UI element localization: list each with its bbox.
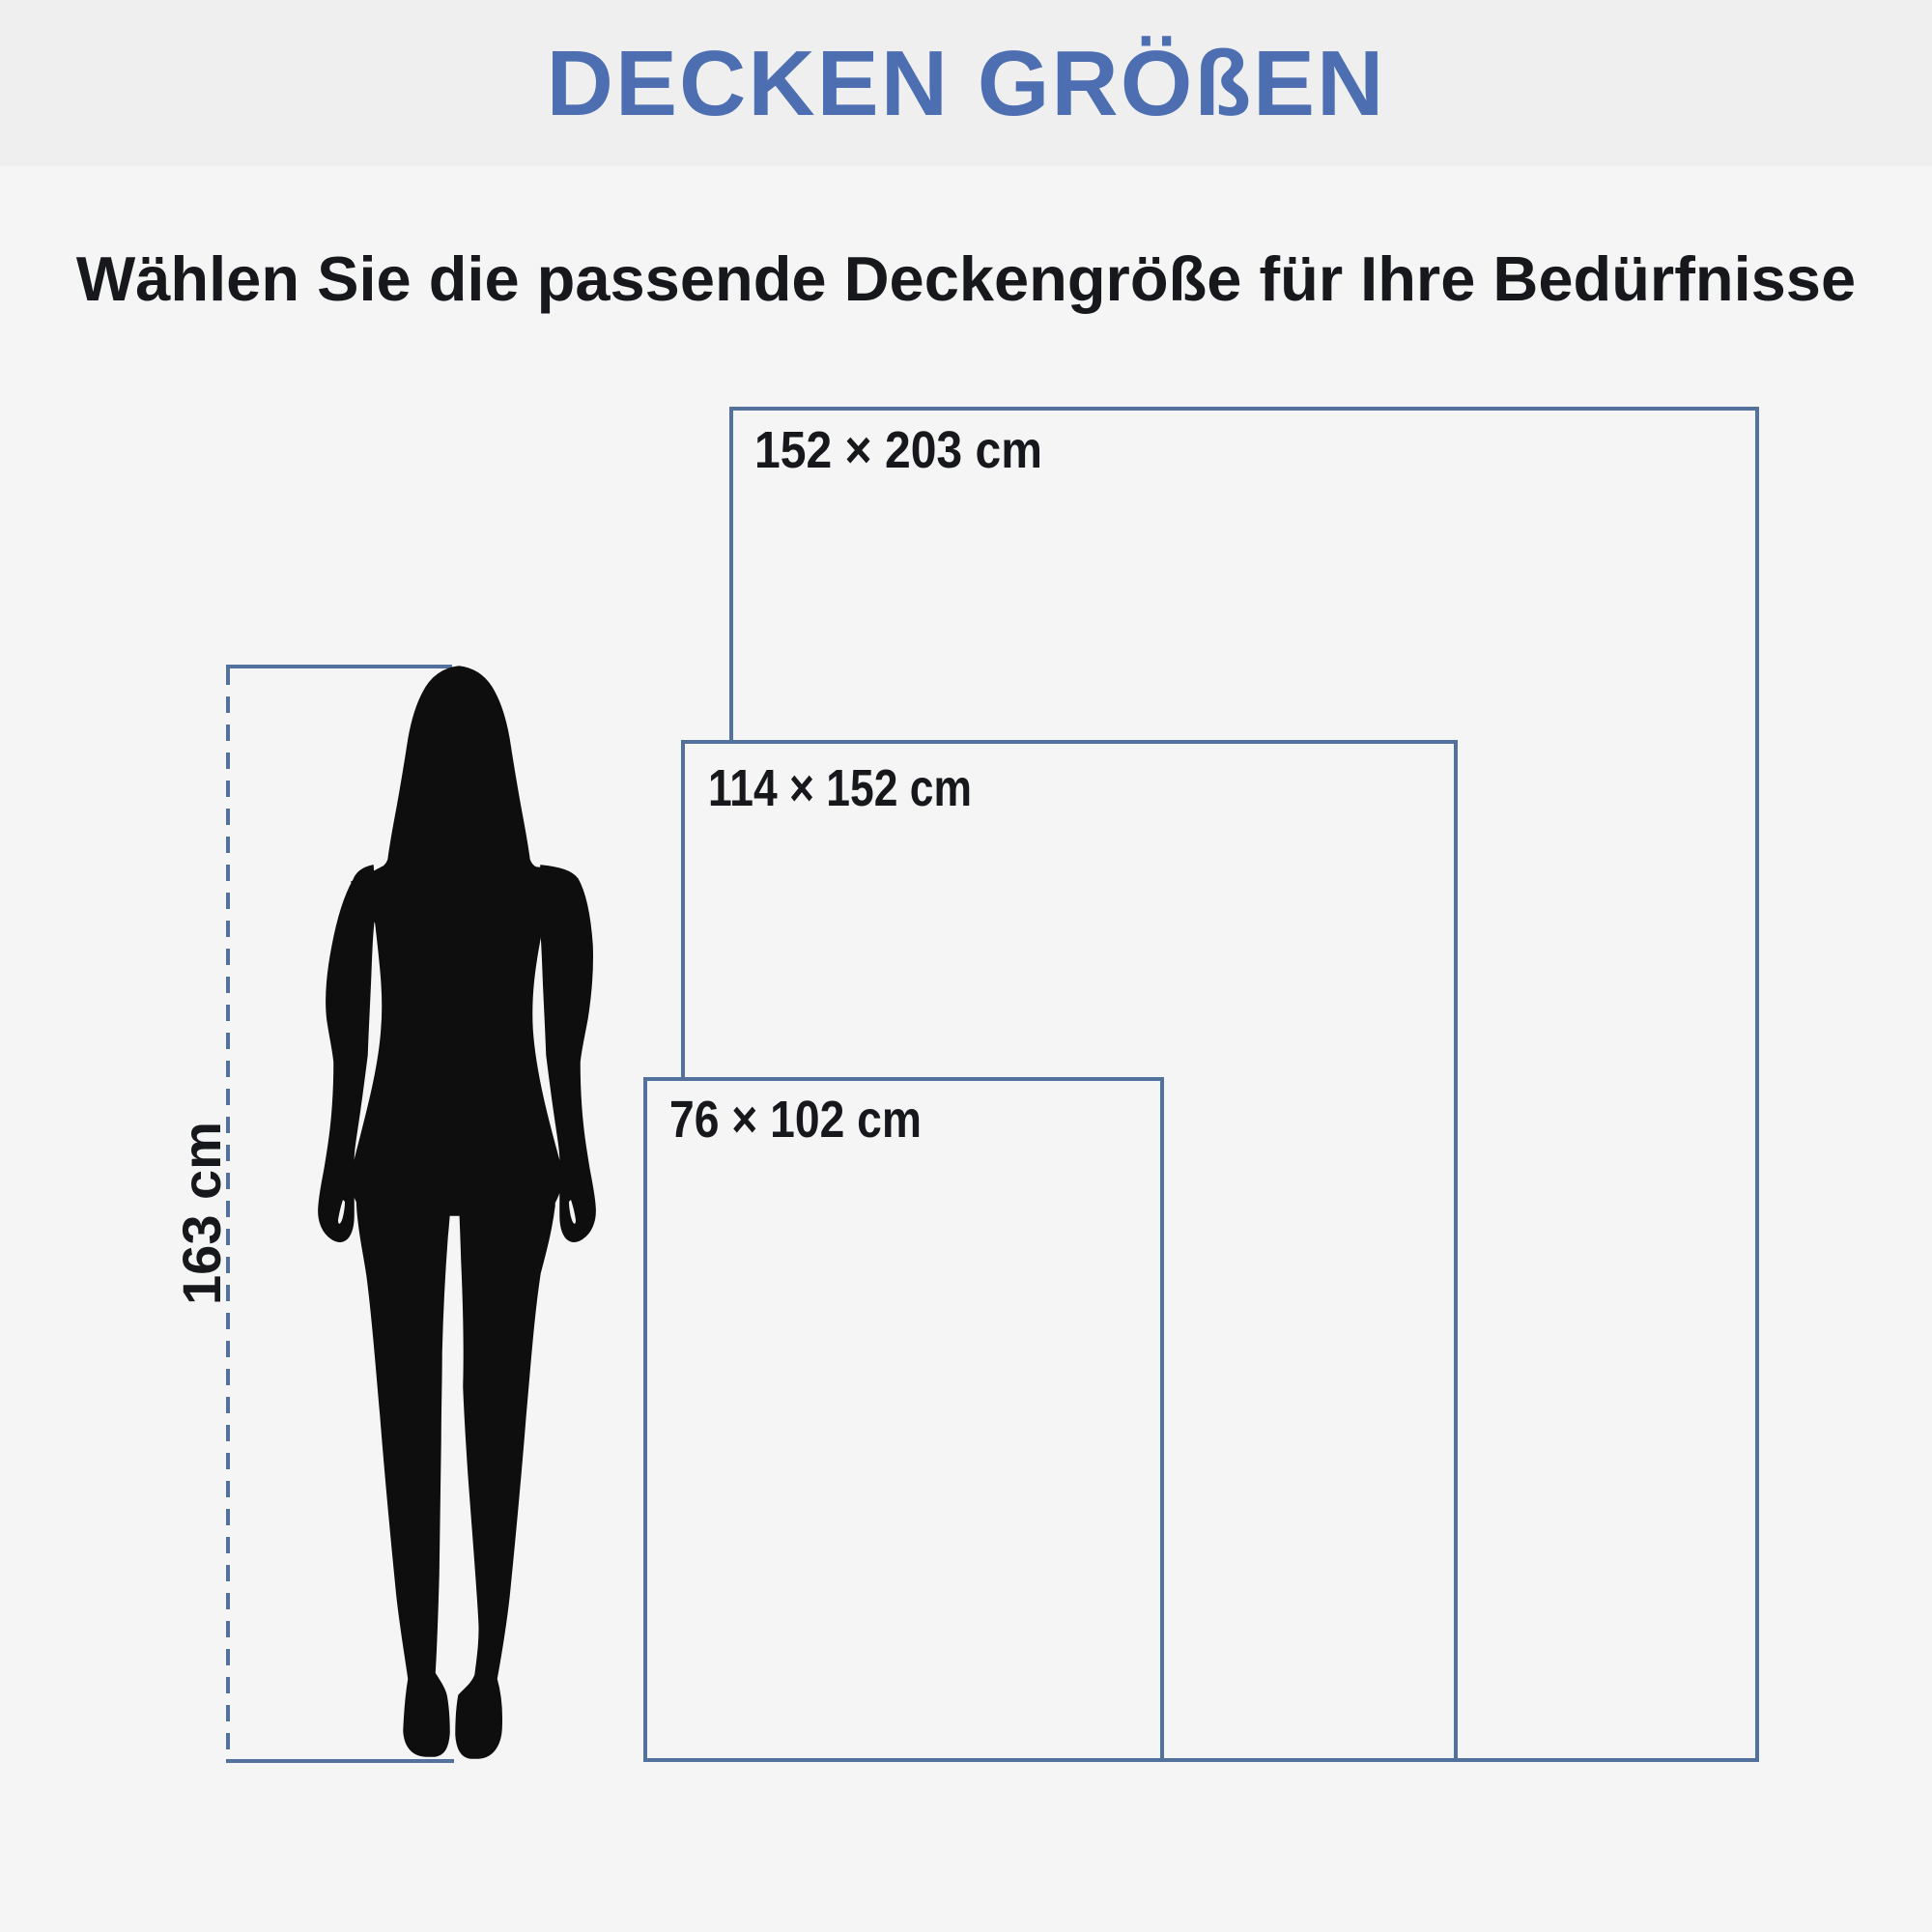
svg-text:76 × 102 cm: 76 × 102 cm	[669, 1091, 922, 1149]
svg-text:152 × 203 cm: 152 × 203 cm	[754, 421, 1042, 479]
svg-text:163 cm: 163 cm	[171, 1122, 232, 1305]
svg-text:114 × 152 cm: 114 × 152 cm	[708, 759, 972, 817]
